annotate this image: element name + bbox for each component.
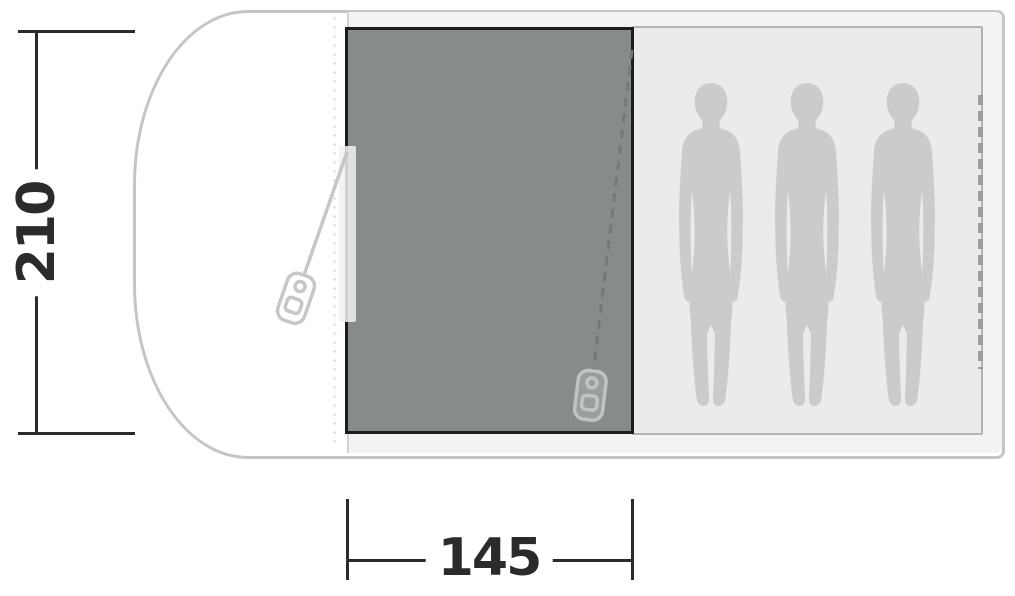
dimension-width-tick-right bbox=[631, 499, 634, 580]
person-silhouette bbox=[759, 80, 855, 418]
capacity-figures bbox=[633, 28, 981, 433]
groundsheet-panel bbox=[345, 27, 634, 434]
dotted-seam-line bbox=[333, 14, 336, 444]
dimension-width-tick-left bbox=[346, 499, 349, 580]
dashed-zip-door-line bbox=[978, 95, 983, 369]
door-strip bbox=[339, 146, 356, 322]
dimension-height-tick-top bbox=[18, 30, 135, 33]
sleeping-area bbox=[631, 26, 983, 435]
dimension-width-label: 145 bbox=[426, 526, 553, 590]
tent-floorplan-diagram: 210 145 bbox=[0, 0, 1015, 596]
dimension-height-tick-bottom bbox=[18, 432, 135, 435]
person-silhouette bbox=[663, 80, 759, 418]
person-silhouette bbox=[855, 80, 951, 418]
dimension-height-label: 210 bbox=[7, 170, 67, 297]
